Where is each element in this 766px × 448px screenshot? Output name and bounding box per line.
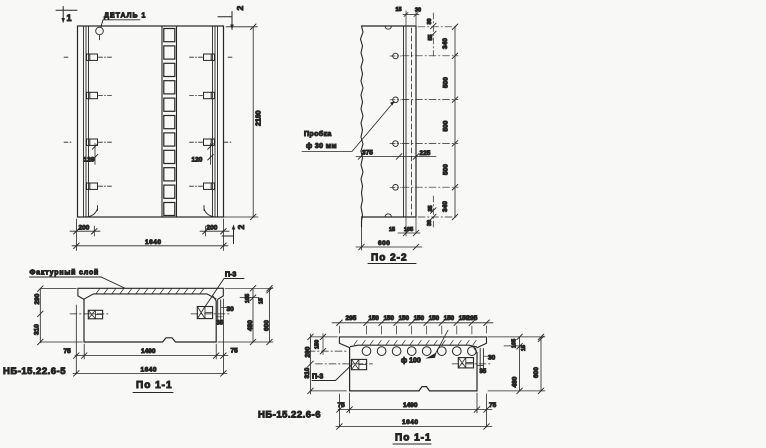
svg-text:ДЕТАЛЬ 1: ДЕТАЛЬ 1 <box>104 13 146 20</box>
svg-text:35: 35 <box>428 205 434 211</box>
svg-text:1640: 1640 <box>145 239 161 246</box>
svg-text:75: 75 <box>64 348 72 355</box>
svg-text:35: 35 <box>217 321 224 327</box>
svg-text:500: 500 <box>443 120 450 131</box>
svg-text:75: 75 <box>338 402 346 409</box>
svg-text:1640: 1640 <box>141 367 157 374</box>
svg-text:340: 340 <box>442 38 449 49</box>
svg-text:290: 290 <box>34 293 41 304</box>
svg-text:15: 15 <box>396 7 402 13</box>
svg-text:30: 30 <box>227 306 235 313</box>
svg-text:1: 1 <box>67 13 72 23</box>
svg-text:150: 150 <box>444 315 455 322</box>
svg-text:1490: 1490 <box>141 348 156 355</box>
svg-text:150: 150 <box>384 315 395 322</box>
svg-text:295: 295 <box>346 315 357 322</box>
svg-text:200: 200 <box>207 225 218 232</box>
svg-text:П-3: П-3 <box>225 272 236 279</box>
svg-text:1640: 1640 <box>402 419 418 426</box>
svg-text:ф 30 мм: ф 30 мм <box>306 143 337 150</box>
svg-text:295: 295 <box>467 315 478 322</box>
svg-text:1490: 1490 <box>403 402 418 409</box>
svg-text:500: 500 <box>443 164 450 175</box>
svg-text:105: 105 <box>512 339 518 348</box>
svg-text:480: 480 <box>512 376 519 387</box>
svg-text:310: 310 <box>34 324 41 335</box>
svg-text:200: 200 <box>79 225 90 232</box>
svg-text:Фактурный слой: Фактурный слой <box>30 269 100 277</box>
svg-text:По 2-2: По 2-2 <box>371 253 408 264</box>
svg-text:105: 105 <box>245 294 251 303</box>
svg-text:600: 600 <box>378 240 390 247</box>
svg-text:500: 500 <box>443 77 450 88</box>
svg-text:По 1-1: По 1-1 <box>395 433 432 444</box>
svg-text:600: 600 <box>264 320 271 331</box>
svg-text:75: 75 <box>231 348 239 355</box>
svg-text:ф 100: ф 100 <box>401 358 421 365</box>
svg-text:35: 35 <box>480 369 487 375</box>
svg-text:75: 75 <box>489 402 497 409</box>
svg-text:375: 375 <box>362 150 373 157</box>
svg-text:П-3: П-3 <box>312 374 323 381</box>
svg-text:225: 225 <box>420 150 431 157</box>
svg-text:НБ-15.22.6-6: НБ-15.22.6-6 <box>258 410 321 421</box>
svg-text:30: 30 <box>415 8 421 14</box>
svg-text:105: 105 <box>404 227 413 233</box>
svg-text:600: 600 <box>533 367 540 378</box>
svg-text:150: 150 <box>414 315 425 322</box>
svg-text:30: 30 <box>427 18 433 24</box>
svg-text:120: 120 <box>84 157 95 164</box>
svg-text:По 1-1: По 1-1 <box>136 380 173 391</box>
svg-text:НБ-15.22.6-5: НБ-15.22.6-5 <box>3 366 66 377</box>
svg-text:2: 2 <box>235 6 245 11</box>
svg-text:150: 150 <box>429 315 440 322</box>
svg-text:30: 30 <box>488 355 496 362</box>
svg-text:120: 120 <box>192 157 203 164</box>
svg-text:310: 310 <box>304 367 311 378</box>
svg-text:480: 480 <box>247 320 254 331</box>
svg-text:2180: 2180 <box>256 110 263 126</box>
svg-text:Пробка: Пробка <box>304 130 332 138</box>
svg-text:2: 2 <box>236 225 246 230</box>
svg-text:15: 15 <box>259 298 265 304</box>
svg-text:340: 340 <box>442 201 449 212</box>
svg-text:150: 150 <box>315 340 321 349</box>
svg-text:150: 150 <box>369 315 380 322</box>
svg-text:290: 290 <box>305 346 312 357</box>
svg-text:30: 30 <box>427 220 433 226</box>
svg-text:15: 15 <box>389 227 395 233</box>
svg-text:150: 150 <box>399 315 410 322</box>
svg-text:15: 15 <box>521 345 527 351</box>
svg-text:55: 55 <box>428 34 434 40</box>
